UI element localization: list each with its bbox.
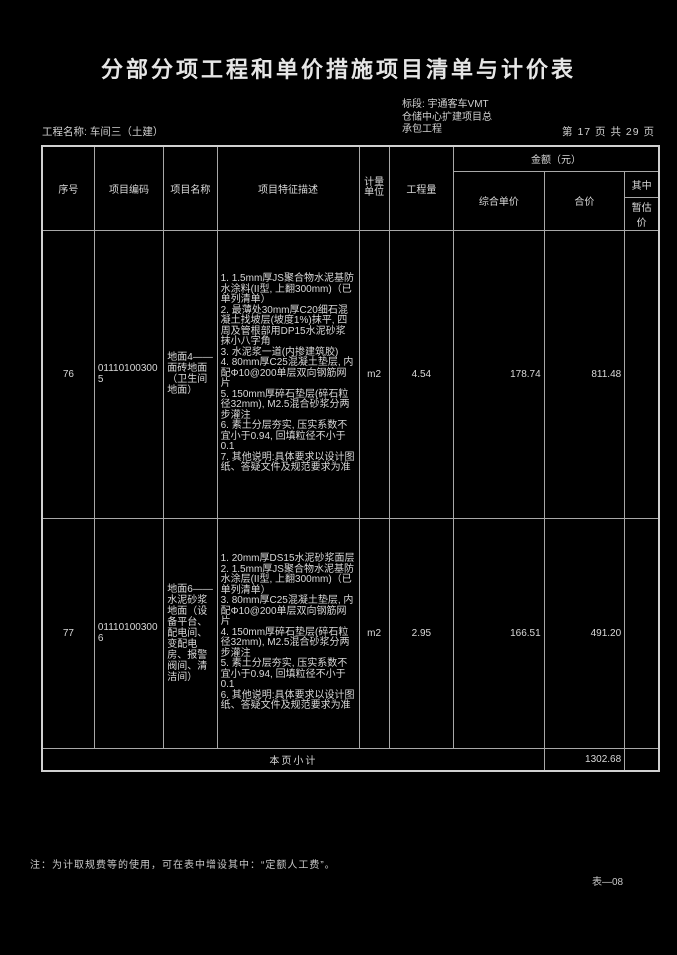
header-seq: 序号 <box>42 146 94 230</box>
row-name: 地面6——水泥砂浆地面（设备平台、配电间、变配电房、报警阀间、清洁间） <box>164 518 217 748</box>
header-amount-group: 金额（元） <box>454 146 659 171</box>
row-seq: 76 <box>42 230 94 518</box>
row-total-price: 811.48 <box>544 230 625 518</box>
row-features: 1. 1.5mm厚JS聚合物水泥基防水涂料(II型, 上翻300mm)（已单列清… <box>217 230 359 518</box>
subtotal-provisional <box>625 748 659 771</box>
subtotal-row: 本页小计 1302.68 <box>42 748 659 771</box>
header-features: 项目特征描述 <box>217 146 359 230</box>
form-code-label: 表—08 <box>592 873 623 888</box>
bill-of-quantities-table: 序号 项目编码 项目名称 项目特征描述 计量 单位 工程量 金额（元） 综合单价… <box>41 145 660 772</box>
row-name: 地面4——面砖地面（卫生间地面） <box>164 230 217 518</box>
header-provisional: 暂估价 <box>625 197 659 230</box>
subtotal-total-price: 1302.68 <box>544 748 625 771</box>
row-seq: 77 <box>42 518 94 748</box>
row-code: 011101003006 <box>94 518 163 748</box>
page-number-label: 第 17 页 共 29 页 <box>562 124 655 139</box>
header-unit: 计量 单位 <box>359 146 389 230</box>
row-code: 011101003005 <box>94 230 163 518</box>
row-total-price: 491.20 <box>544 518 625 748</box>
project-name-label: 工程名称: 车间三（土建） <box>42 124 163 139</box>
table-row: 77 011101003006 地面6——水泥砂浆地面（设备平台、配电间、变配电… <box>42 518 659 748</box>
header-name: 项目名称 <box>164 146 217 230</box>
subtotal-label: 本页小计 <box>42 748 544 771</box>
row-unit: m2 <box>359 518 389 748</box>
header-quantity: 工程量 <box>389 146 453 230</box>
row-features: 1. 20mm厚DS15水泥砂浆面层 2. 1.5mm厚JS聚合物水泥基防水涂层… <box>217 518 359 748</box>
row-unit-price: 166.51 <box>454 518 545 748</box>
row-provisional <box>625 518 659 748</box>
row-quantity: 2.95 <box>389 518 453 748</box>
footnote: 注：为计取规费等的使用，可在表中增设其中：“定额人工费”。 <box>30 856 336 871</box>
header-total-price: 合价 <box>544 171 625 230</box>
row-unit: m2 <box>359 230 389 518</box>
scanned-document-page: 分部分项工程和单价措施项目清单与计价表 工程名称: 车间三（土建） 标段: 宇通… <box>0 0 677 955</box>
row-quantity: 4.54 <box>389 230 453 518</box>
header-unit-price: 综合单价 <box>454 171 545 230</box>
section-label: 标段: 宇通客车VMT 仓储中心扩建项目总 承包工程 <box>402 99 492 137</box>
header-among: 其中 <box>625 171 659 197</box>
table-row: 76 011101003005 地面4——面砖地面（卫生间地面） 1. 1.5m… <box>42 230 659 518</box>
row-provisional <box>625 230 659 518</box>
document-title: 分部分项工程和单价措施项目清单与计价表 <box>0 52 677 84</box>
header-code: 项目编码 <box>94 146 163 230</box>
row-unit-price: 178.74 <box>454 230 545 518</box>
